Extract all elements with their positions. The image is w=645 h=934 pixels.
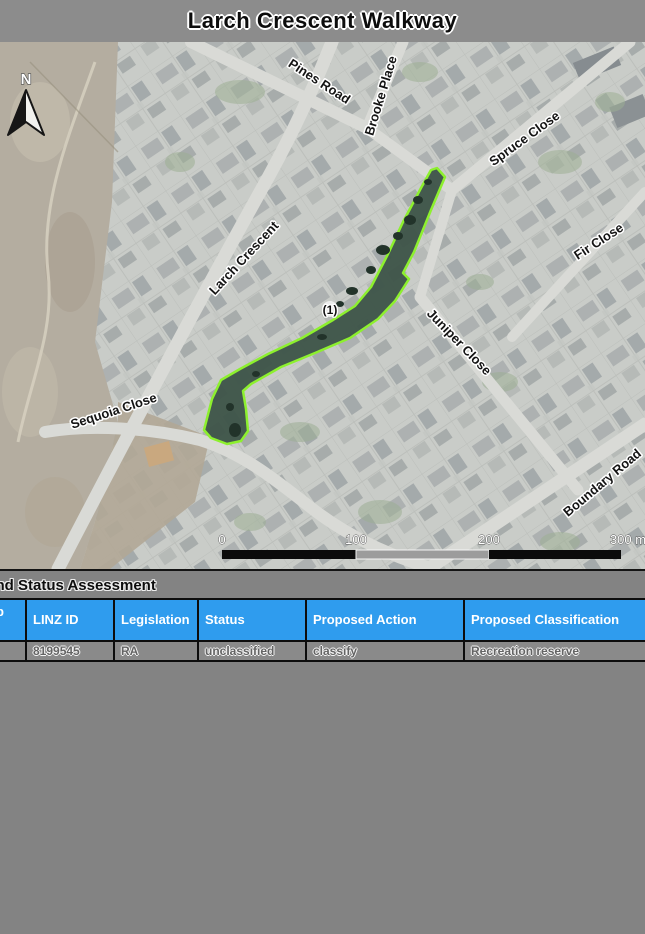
cell-map-id	[0, 641, 26, 661]
map-frame: (1) Pines Road Brooke Place Spruce Close…	[0, 42, 645, 571]
column-header-proposed-classification: Proposed Classification	[464, 599, 645, 641]
assessment-heading: Land Status Assessment	[0, 577, 156, 594]
scale-label-200: 200	[478, 532, 500, 547]
column-header-map-id: Map ID	[0, 599, 26, 641]
north-arrow-label: N	[21, 71, 32, 88]
column-header-linz-id: LINZ ID	[26, 599, 114, 641]
cell-proposed-action: classify	[306, 641, 464, 661]
cell-proposed-classification: Recreation reserve	[464, 641, 645, 661]
map-canvas: (1) Pines Road Brooke Place Spruce Close…	[0, 42, 645, 569]
table-row: 8199545 RA unclassified classify Recreat…	[0, 641, 645, 661]
page-title: Larch Crescent Walkway	[188, 8, 457, 34]
parcel-label: (1)	[323, 303, 338, 317]
land-status-table: Map ID LINZ ID Legislation Status Propos…	[0, 598, 645, 662]
map-document-page: Larch Crescent Walkway	[0, 0, 645, 934]
cell-linz-id: 8199545	[26, 641, 114, 661]
cell-status: unclassified	[198, 641, 306, 661]
column-header-proposed-action: Proposed Action	[306, 599, 464, 641]
column-header-legislation: Legislation	[114, 599, 198, 641]
scale-label-100: 100	[345, 532, 367, 547]
cell-legislation: RA	[114, 641, 198, 661]
column-header-status: Status	[198, 599, 306, 641]
scale-label-0: 0	[218, 532, 225, 547]
scale-label-300m: 300 m	[610, 532, 645, 547]
title-bar: Larch Crescent Walkway	[0, 0, 645, 42]
table-header-row: Map ID LINZ ID Legislation Status Propos…	[0, 599, 645, 641]
